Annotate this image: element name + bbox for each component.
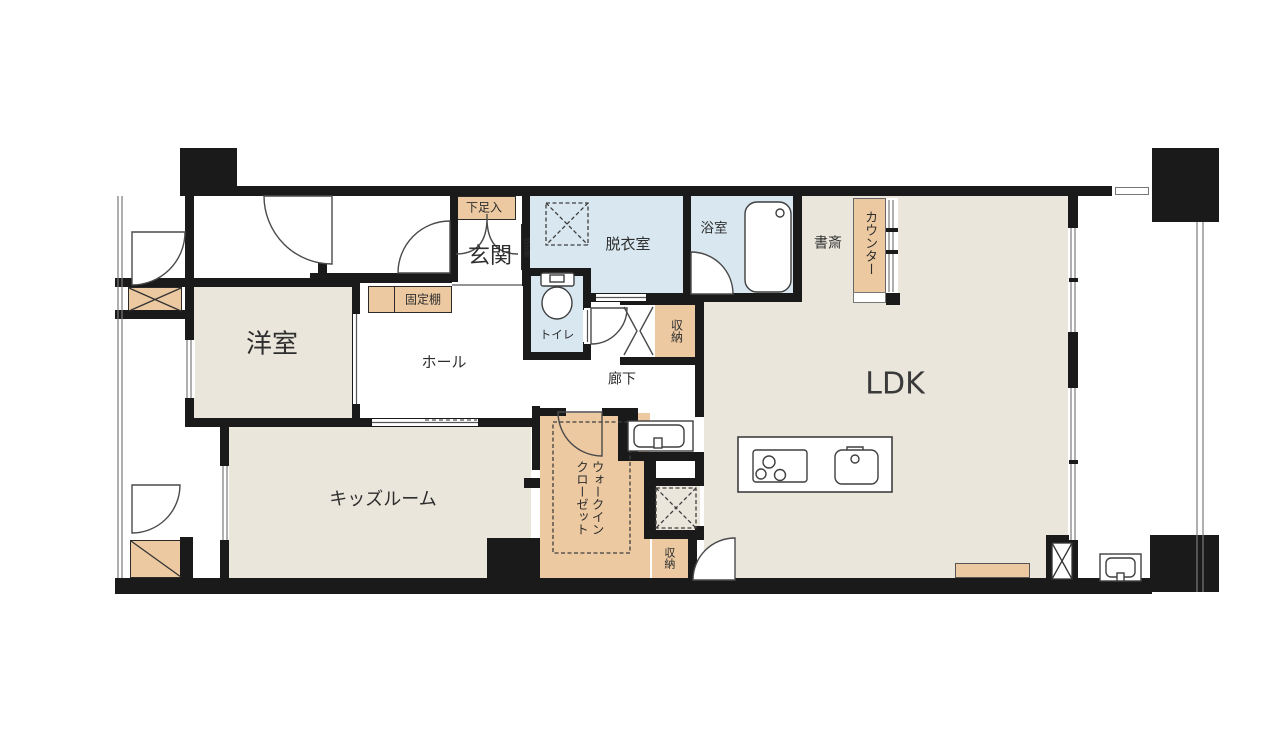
label-dressing-room: 脱衣室 [605, 236, 650, 253]
label-toilet: トイレ [540, 329, 575, 342]
label-bathroom: 浴室 [701, 222, 728, 237]
window-lines [118, 196, 1203, 592]
fixtures [541, 202, 1141, 581]
label-storage-lower: 収納 [662, 547, 676, 569]
pipe-space-diagonal [131, 541, 181, 577]
label-genkan: 玄関 [468, 245, 512, 269]
bathtub [745, 202, 791, 292]
balcony-railing [1197, 222, 1203, 592]
slop-sink [1100, 554, 1141, 581]
label-counter: カウンター [861, 211, 877, 276]
bifold-door-lines [624, 307, 653, 355]
sliding-door-lines [357, 285, 647, 423]
meter-box-x [129, 288, 181, 311]
stove [753, 450, 807, 482]
label-walk-in-closet: ウォークイン クローゼット [573, 461, 604, 536]
window-ticks [886, 228, 1078, 464]
kitchen-sink [835, 447, 878, 484]
toilet-fixture [541, 273, 574, 319]
label-kids-room: キッズルーム [329, 490, 436, 510]
label-western-room: 洋室 [246, 331, 298, 360]
corridor-bottom-door-arc [132, 485, 180, 533]
kitchen-island [738, 437, 892, 492]
bath-door-arc [691, 252, 733, 294]
floor-plan: 玄関 下足入 固定棚 脱衣室 浴室 書斎 カウンター LDK 洋室 ホール 固定… [0, 0, 1269, 750]
washbasin [628, 421, 693, 451]
corridor-top-door-arc [132, 232, 185, 285]
porch-door-arc [264, 196, 332, 264]
corridor-railing [118, 196, 122, 578]
label-corridor: 廊下 [608, 372, 636, 387]
label-fixed-shelf-hall: 固定棚 [405, 293, 441, 306]
entry-door-arc [398, 221, 450, 273]
label-fixed-shelf-entry: 固定棚 [522, 237, 530, 257]
toilet-door-arc [591, 308, 627, 344]
label-hall: ホール [421, 354, 466, 371]
label-study: 書斎 [814, 236, 842, 251]
label-ldk: LDK [865, 368, 925, 401]
label-storage-upper: 収納 [669, 319, 684, 343]
label-shoe-cabinet: 下足入 [466, 201, 502, 214]
storage-lower-door-arc [693, 538, 735, 580]
wic-door-arc [558, 412, 602, 456]
